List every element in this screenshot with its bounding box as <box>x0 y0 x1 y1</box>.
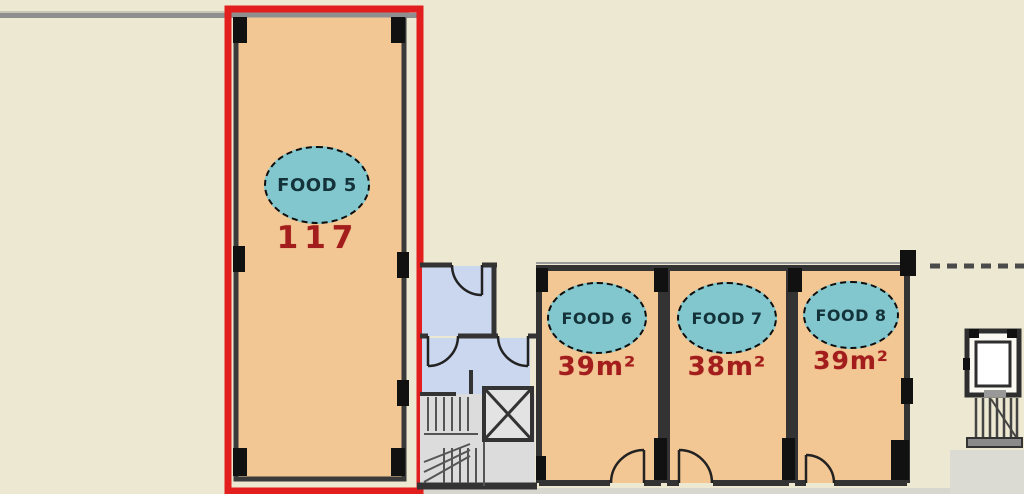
corridor-lower <box>422 338 530 394</box>
unit-area-food-6: 39m² <box>547 352 647 382</box>
unit-badge-food-7[interactable]: FOOD 7 <box>677 282 777 354</box>
elevator-shaft-core <box>484 388 532 440</box>
unit-area-food-7: 38m² <box>677 352 777 382</box>
elevator-shaft-right <box>963 329 1019 397</box>
floor-plan: FOOD 5 117 FOOD 6 39m² FOOD 7 38m² FOOD … <box>0 0 1024 494</box>
floor-plan-drawing <box>0 0 1024 494</box>
unit-label: FOOD 5 <box>277 175 357 196</box>
unit-badge-food-6[interactable]: FOOD 6 <box>547 282 647 354</box>
staircase-right <box>976 398 1017 438</box>
unit-badge-food-8[interactable]: FOOD 8 <box>803 281 899 349</box>
concrete-patch <box>950 450 1024 494</box>
staircase-right-base <box>967 438 1022 447</box>
unit-area-food-8: 39m² <box>801 346 901 375</box>
unit-badge-food-5[interactable]: FOOD 5 <box>264 146 370 224</box>
unit-label: FOOD 8 <box>815 306 886 325</box>
unit-area-food-5: 117 <box>268 220 368 256</box>
unit-label: FOOD 7 <box>691 309 762 328</box>
unit-label: FOOD 6 <box>561 309 632 328</box>
